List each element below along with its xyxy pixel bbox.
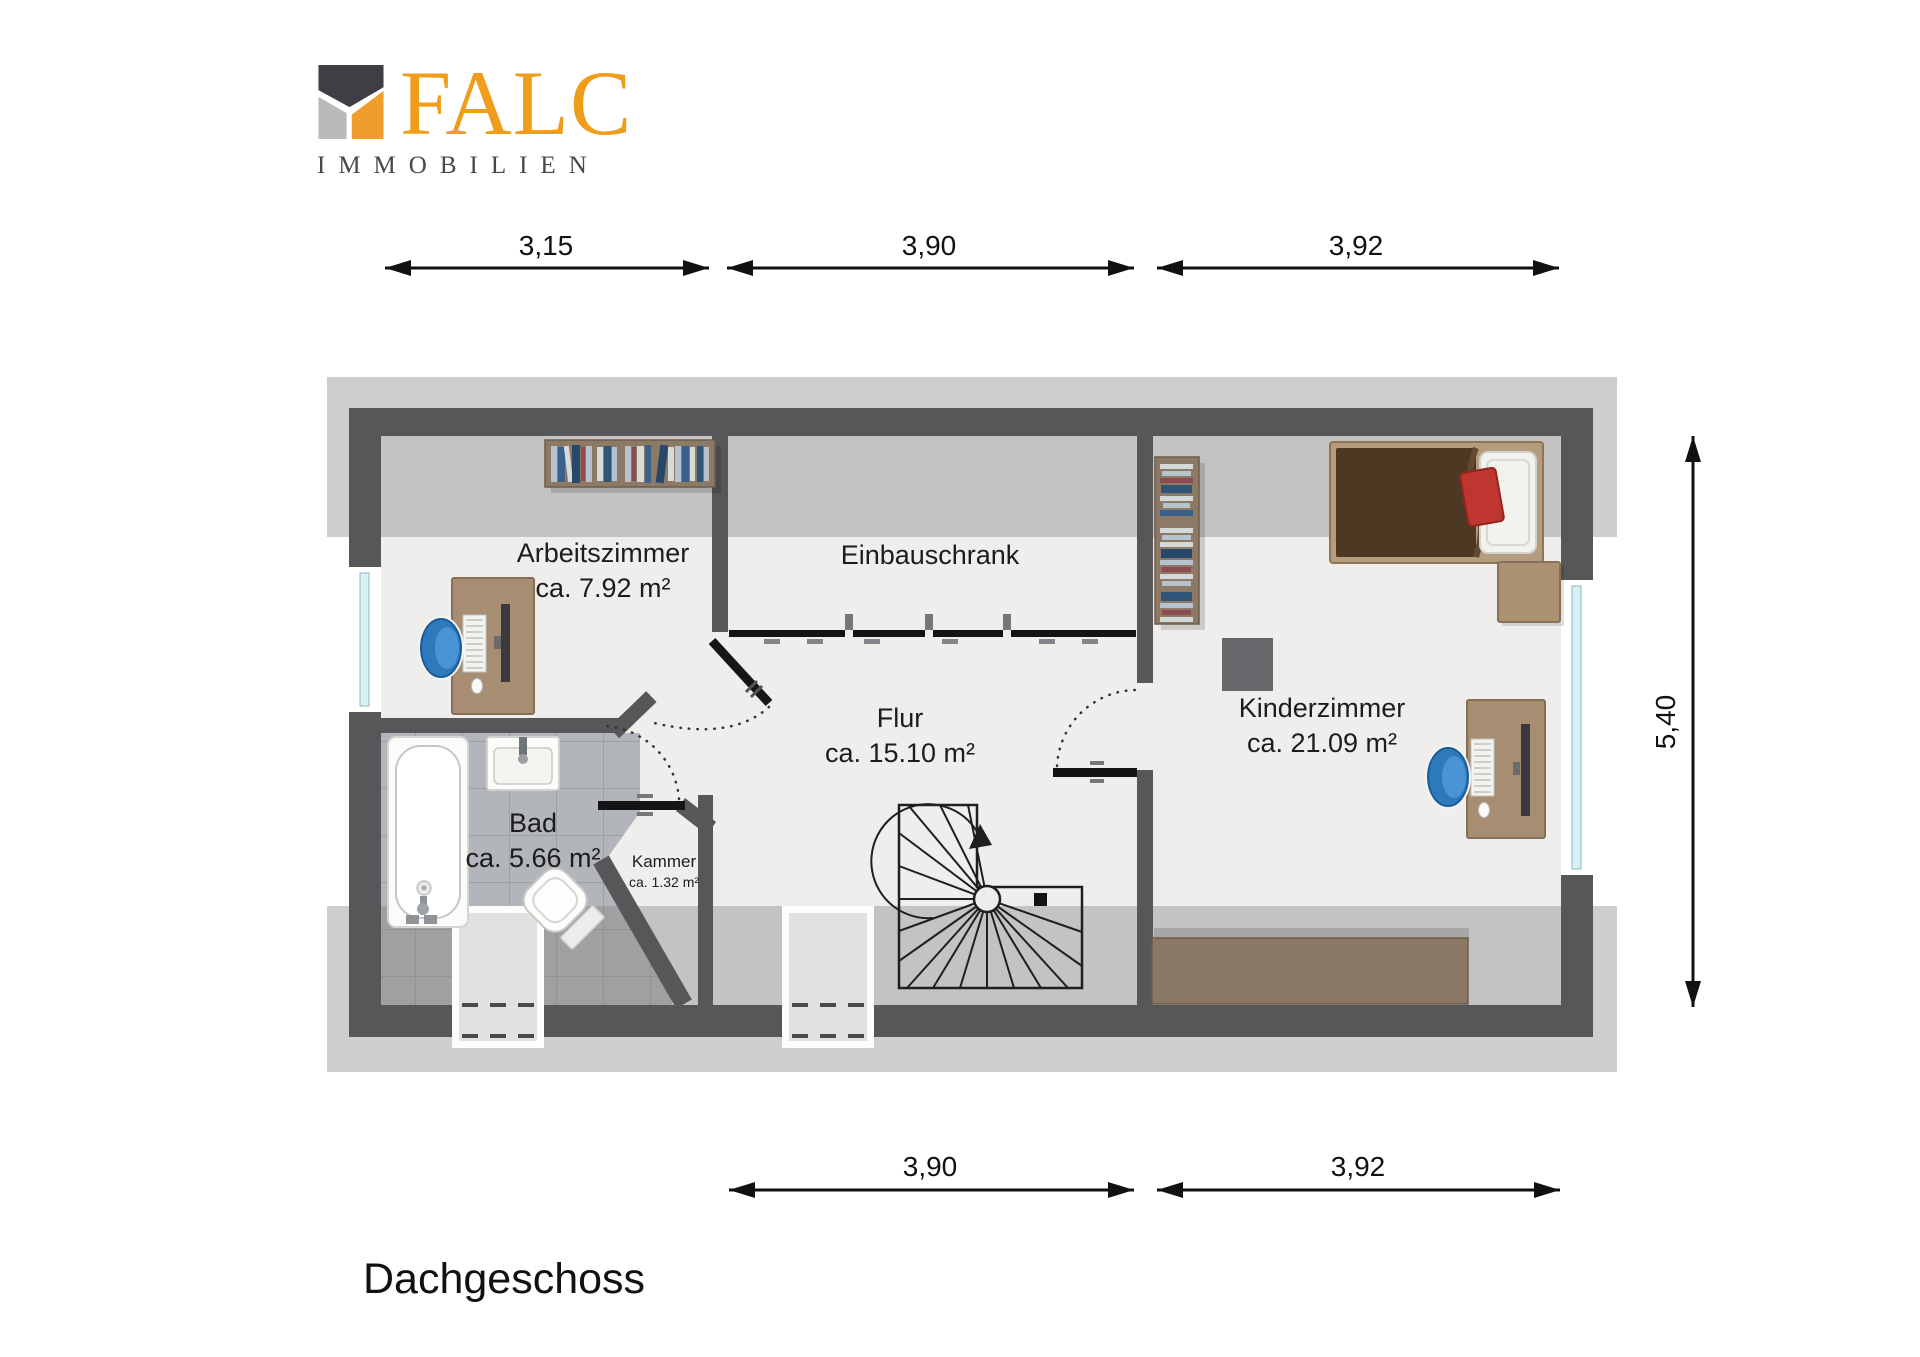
- floor-plan-canvas: [0, 0, 1920, 1357]
- gray-stool: [1222, 638, 1273, 691]
- stair-marker: [1034, 893, 1047, 906]
- wall-right-upper: [1561, 408, 1593, 580]
- childroom-mouse: [1479, 803, 1490, 818]
- wall-childroom-lower: [1137, 770, 1153, 1005]
- nightstand: [1498, 562, 1560, 622]
- bathtub: [388, 737, 468, 927]
- room-area: ca. 21.09 m²: [1239, 726, 1406, 761]
- floorplan-page: FALC IMMOBILIEN: [0, 0, 1920, 1357]
- dim-label-bottom-2: 3,92: [1331, 1151, 1386, 1183]
- window-left: [349, 567, 381, 712]
- dormer-window-right: [782, 906, 874, 1048]
- bed: [1330, 442, 1543, 563]
- wall-left-lower: [349, 712, 381, 1037]
- room-area: ca. 1.32 m²: [629, 872, 699, 893]
- study-keyboard: [463, 615, 486, 672]
- dormer-window-left: [452, 906, 544, 1048]
- wall-childroom-upper: [1137, 436, 1153, 683]
- wall-top: [349, 408, 1593, 436]
- room-label-flur: Flur ca. 15.10 m²: [825, 701, 975, 771]
- room-area: ca. 15.10 m²: [825, 736, 975, 771]
- room-name: Kammer: [632, 852, 696, 871]
- room-label-arbeitszimmer: Arbeitszimmer ca. 7.92 m²: [517, 536, 690, 606]
- room-area: ca. 5.66 m²: [465, 841, 600, 876]
- room-name: Arbeitszimmer: [517, 538, 690, 568]
- dim-label-top-1: 3,15: [519, 230, 574, 262]
- room-label-einbauschrank: Einbauschrank: [841, 538, 1020, 573]
- wall-study-bath: [381, 718, 622, 733]
- monitor-stand: [494, 636, 501, 649]
- childroom-monitor: [1521, 724, 1530, 816]
- room-name: Flur: [877, 703, 924, 733]
- wall-right-lower: [1561, 875, 1593, 1037]
- wall-left-upper: [349, 408, 381, 567]
- room-label-kinderzimmer: Kinderzimmer ca. 21.09 m²: [1239, 691, 1406, 761]
- room-label-bad: Bad ca. 5.66 m²: [465, 806, 600, 876]
- room-area: ca. 7.92 m²: [517, 571, 690, 606]
- sideboard: [1152, 938, 1468, 1004]
- monitor2-stand: [1513, 762, 1520, 775]
- dim-label-right: 5,40: [1650, 695, 1682, 750]
- room-name: Bad: [509, 808, 557, 838]
- bookshelf-vertical-books: [1160, 464, 1193, 622]
- stair-newel: [974, 886, 1000, 912]
- washbasin: [487, 737, 559, 790]
- floor-title: Dachgeschoss: [363, 1255, 645, 1304]
- childroom-office-chair: [1425, 745, 1471, 809]
- study-office-chair: [418, 616, 464, 680]
- dim-label-bottom-1: 3,90: [903, 1151, 958, 1183]
- dim-label-top-2: 3,90: [902, 230, 957, 262]
- study-monitor: [501, 604, 510, 682]
- room-name: Einbauschrank: [841, 540, 1020, 570]
- room-label-kammer: Kammer ca. 1.32 m²: [629, 851, 699, 893]
- dim-label-top-3: 3,92: [1329, 230, 1384, 262]
- window-right: [1561, 580, 1593, 875]
- room-name: Kinderzimmer: [1239, 693, 1406, 723]
- childroom-keyboard: [1471, 739, 1494, 796]
- study-mouse: [472, 679, 483, 694]
- bookshelf-books: [551, 445, 709, 484]
